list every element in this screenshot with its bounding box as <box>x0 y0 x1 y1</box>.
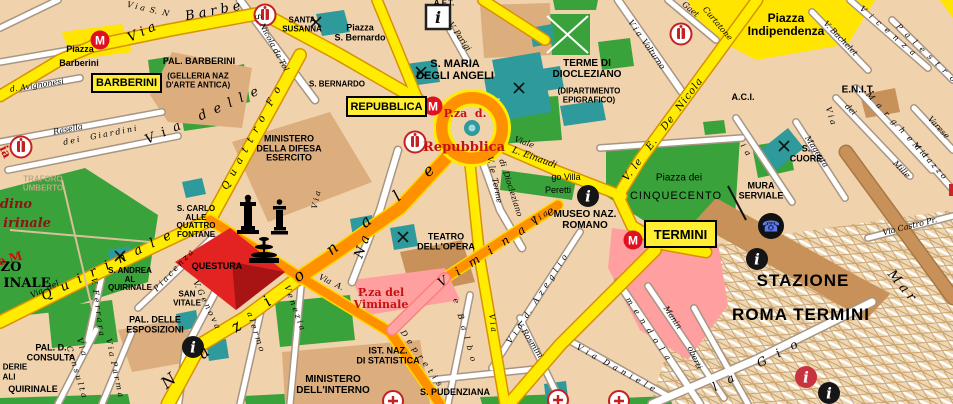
svg-text:i: i <box>754 251 760 269</box>
station-box-termini[interactable]: TERMINI <box>644 220 717 248</box>
church-cross-icon[interactable] <box>609 391 629 404</box>
area-terme-green-2 <box>598 38 634 70</box>
svg-text:i: i <box>585 188 591 206</box>
svg-text:M: M <box>428 100 438 114</box>
info-icon[interactable]: i <box>577 185 599 207</box>
svg-text:☎: ☎ <box>762 218 781 236</box>
metro-icon[interactable]: M <box>624 231 643 250</box>
station-box-barberini[interactable]: BARBERINI <box>91 73 162 93</box>
area-corner-ne <box>940 0 953 18</box>
svg-text:M: M <box>628 234 638 248</box>
street-via-daniele <box>572 342 668 396</box>
svg-text:i: i <box>435 8 441 27</box>
church-cross-icon[interactable] <box>548 390 568 404</box>
street-street-nw-1 <box>0 0 58 28</box>
svg-text:i: i <box>803 369 809 387</box>
info-red-icon[interactable]: i <box>795 366 817 388</box>
svg-text:i: i <box>826 385 832 403</box>
church-cross-icon[interactable] <box>383 391 403 404</box>
area-denicola-teal <box>560 100 606 126</box>
info-icon[interactable]: i <box>818 382 840 404</box>
area-indipendenza-green <box>703 120 726 135</box>
station-box-repubblica[interactable]: REPUBBLICA <box>346 96 427 117</box>
street-via-palestro <box>892 20 953 80</box>
area-quirinale-gardens <box>0 168 158 318</box>
rome-termini-map: MMMiiiiii☎ SANTA SUSANNAPiazza S. Bernar… <box>0 0 953 404</box>
area-santa-susanna-ch <box>316 10 350 36</box>
info-box-icon[interactable]: i <box>426 5 450 29</box>
street-via-magenta <box>796 122 845 198</box>
church-icon[interactable] <box>405 132 426 153</box>
svg-text:M: M <box>95 34 105 48</box>
info-icon[interactable]: i <box>182 336 204 358</box>
area-top-green <box>553 0 598 10</box>
area-terme-teal-1 <box>498 60 528 90</box>
area-quirinale-palace-garden <box>48 300 118 348</box>
street-via-dei-giardini <box>8 136 178 170</box>
street-via-varese <box>914 108 953 150</box>
church-icon[interactable] <box>255 5 276 26</box>
map-canvas: MMMiiiiii☎ <box>0 0 953 404</box>
area-s-carlo-ch <box>182 178 206 198</box>
church-icon[interactable] <box>11 137 32 158</box>
svg-text:i: i <box>190 339 196 357</box>
metro-icon[interactable]: M <box>91 31 110 50</box>
church-icon[interactable] <box>671 24 692 45</box>
phone-icon[interactable]: ☎ <box>758 213 784 239</box>
street-via-c-balbo <box>448 295 470 404</box>
naiadi-fountain-center <box>469 125 476 132</box>
info-icon[interactable]: i <box>746 248 768 270</box>
